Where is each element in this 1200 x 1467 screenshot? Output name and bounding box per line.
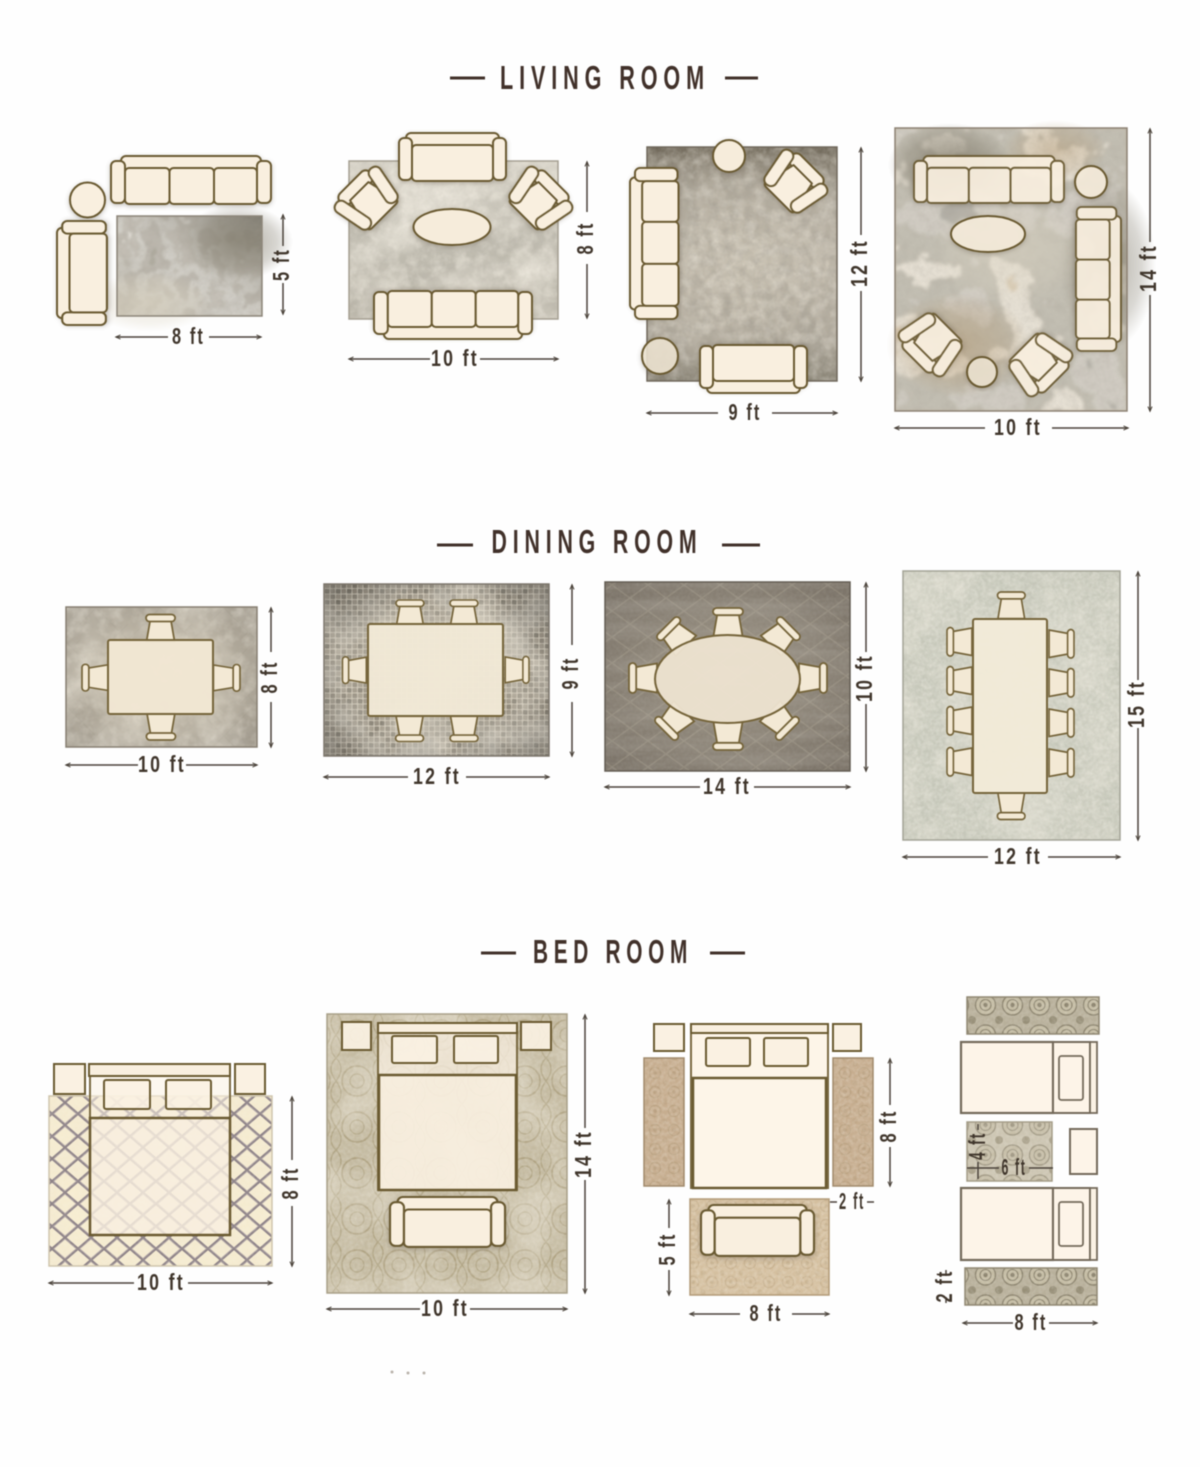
svg-text:8 ft: 8 ft xyxy=(875,1110,901,1143)
svg-text:4 ft: 4 ft xyxy=(964,1132,990,1160)
svg-text:10 ft: 10 ft xyxy=(851,654,877,702)
svg-text:8 ft: 8 ft xyxy=(572,222,598,255)
svg-text:2 ft: 2 ft xyxy=(839,1188,865,1214)
svg-text:15 ft: 15 ft xyxy=(1123,680,1149,728)
svg-text:14 ft: 14 ft xyxy=(570,1130,596,1178)
svg-text:8 ft: 8 ft xyxy=(172,323,205,349)
svg-text:14 ft: 14 ft xyxy=(1135,244,1161,292)
svg-text:9 ft: 9 ft xyxy=(557,657,583,690)
svg-text:5 ft: 5 ft xyxy=(268,248,294,281)
svg-text:12 ft: 12 ft xyxy=(994,843,1042,869)
svg-text:8 ft: 8 ft xyxy=(750,1300,783,1326)
svg-text:2 ft: 2 ft xyxy=(931,1270,957,1303)
svg-text:DINING ROOM: DINING ROOM xyxy=(492,523,703,560)
svg-text:8 ft: 8 ft xyxy=(256,661,282,694)
svg-text:8 ft: 8 ft xyxy=(1015,1309,1048,1335)
svg-text:9 ft: 9 ft xyxy=(729,399,762,425)
svg-text:14 ft: 14 ft xyxy=(703,773,751,799)
svg-text:BED ROOM: BED ROOM xyxy=(533,933,693,970)
svg-text:12 ft: 12 ft xyxy=(846,239,872,287)
svg-text:12 ft: 12 ft xyxy=(413,763,461,789)
svg-text:10 ft: 10 ft xyxy=(421,1295,469,1321)
svg-text:10 ft: 10 ft xyxy=(431,345,479,371)
svg-text:10 ft: 10 ft xyxy=(137,1269,185,1295)
svg-text:LIVING ROOM: LIVING ROOM xyxy=(500,59,710,96)
svg-text:8 ft: 8 ft xyxy=(277,1167,303,1200)
svg-text:10 ft: 10 ft xyxy=(994,414,1042,440)
svg-text:10 ft: 10 ft xyxy=(138,751,186,777)
svg-text:6 ft: 6 ft xyxy=(1002,1154,1027,1180)
svg-text:5 ft: 5 ft xyxy=(654,1233,680,1266)
